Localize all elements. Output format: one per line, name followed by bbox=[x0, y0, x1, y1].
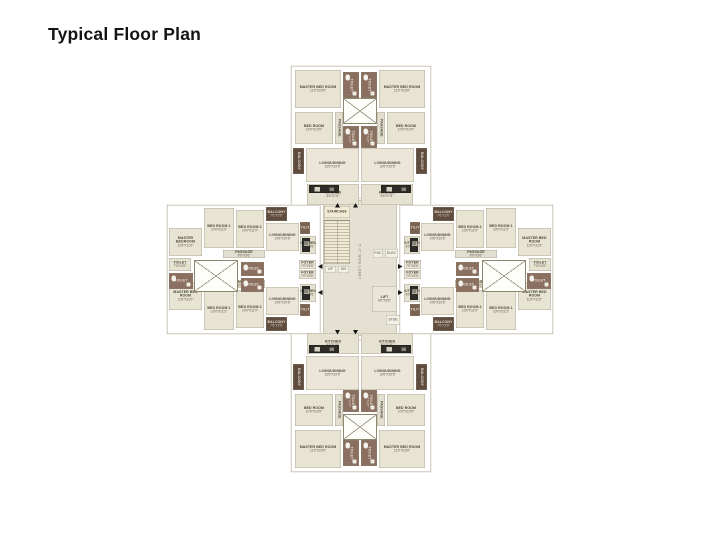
entry-arrow-up-0 bbox=[335, 203, 340, 208]
room-l2-utility: UTILITY bbox=[300, 304, 310, 316]
room-b1-master: MASTER BED ROOM11'0"X10'6" bbox=[295, 430, 341, 468]
room-l2-bed2: BED ROOM 210'0"X11'0" bbox=[236, 290, 264, 328]
page: { "title": "Typical Floor Plan", "palett… bbox=[0, 0, 720, 540]
entry-arrow-left-4 bbox=[318, 264, 323, 269]
room-r1-living: LIVING/DINING14'6"X10'6" bbox=[421, 223, 454, 251]
entry-arrow-down-3 bbox=[353, 330, 358, 335]
room-l1-bed2: BED ROOM 210'0"X11'0" bbox=[236, 210, 264, 248]
room-r1-toilet-b: TOILET bbox=[456, 262, 479, 276]
room-l1-foyer: FOYER7'0"X5'6" bbox=[299, 260, 316, 269]
shaft-duct-2 bbox=[194, 260, 238, 292]
room-t1-passage: PASSAGE bbox=[335, 112, 343, 144]
room-t1-master: MASTER BED ROOM11'0"X10'6" bbox=[295, 70, 341, 108]
room-r1-master: MASTER BED ROOM11'6"X11'0" bbox=[518, 228, 551, 256]
room-b2-living: LIVING/DINING13'6"X10'6" bbox=[361, 356, 414, 390]
room-l2-toilet-a: TOILET bbox=[169, 273, 193, 289]
room-dn: DN bbox=[338, 266, 349, 273]
room-l2-bed1: BED ROOM 110'0"X11'3" bbox=[204, 290, 234, 330]
floor-plan: MASTER BED ROOM11'0"X10'6"TOILETBED ROOM… bbox=[167, 66, 553, 472]
room-l1-balcony: BALCONY7'6"X3'6" bbox=[266, 207, 287, 221]
room-l1-utility: UTILITY bbox=[300, 222, 310, 234]
shaft-duct-0 bbox=[343, 98, 377, 124]
room-r1-bed2: BED ROOM 210'0"X11'0" bbox=[456, 210, 484, 248]
room-r2-toilet-a: TOILET bbox=[527, 273, 551, 289]
room-t2-toilet: TOILET7'0"X4'0" bbox=[361, 126, 377, 148]
room-l2-toilet-b: TOILET bbox=[241, 278, 264, 292]
room-t1-balcony: BALCONY bbox=[293, 148, 304, 174]
room-t2-living: LIVING/DINING13'6"X10'6" bbox=[361, 148, 414, 182]
room-t2-master: MASTER BED ROOM11'0"X10'6" bbox=[379, 70, 425, 108]
entry-arrow-left-5 bbox=[318, 290, 323, 295]
room-b1-counter bbox=[309, 345, 339, 353]
room-b1-balcony: BALCONY bbox=[293, 364, 304, 390]
room-b2-passage: PASSAGE bbox=[377, 394, 385, 426]
room-r2-bed2: BED ROOM 210'0"X11'0" bbox=[456, 290, 484, 328]
room-l1-bed1: BED ROOM 110'0"X11'3" bbox=[204, 208, 234, 248]
room-b2-counter bbox=[381, 345, 411, 353]
room-b1-passage: PASSAGE bbox=[335, 394, 343, 426]
room-l1-counter bbox=[302, 238, 310, 252]
room-r2-balcony: BALCONY7'6"X3'6" bbox=[433, 317, 454, 331]
room-b2-toilet: TOILET7'0"X4'0" bbox=[361, 390, 377, 412]
room-b1-bed: BED ROOM10'0"X10'0" bbox=[295, 394, 333, 426]
room-b2-toilet-btm: TOILET bbox=[361, 440, 377, 466]
room-r2-utility: UTILITY bbox=[410, 304, 420, 316]
room-b2-balcony: BALCONY bbox=[416, 364, 427, 390]
room-t2-counter bbox=[381, 185, 411, 193]
room-stair-label: STAIRCASE bbox=[324, 206, 350, 218]
room-l1-master: MASTER BEDROOM11'6"X11'0" bbox=[169, 228, 202, 256]
room-l2-counter bbox=[302, 286, 310, 300]
entry-arrow-right-7 bbox=[398, 290, 403, 295]
room-t2-bed: BED ROOM10'0"X10'0" bbox=[387, 112, 425, 144]
room-t1-toilet: TOILET7'0"X4'0" bbox=[343, 126, 359, 148]
room-b2-bed: BED ROOM10'0"X10'0" bbox=[387, 394, 425, 426]
entry-arrow-up-1 bbox=[353, 203, 358, 208]
room-up: UP bbox=[325, 266, 336, 273]
staircase-steps bbox=[324, 220, 350, 264]
room-r1-foyer: FOYER7'0"X5'6" bbox=[404, 260, 421, 269]
room-r2-living: LIVING/DINING14'6"X10'6" bbox=[421, 287, 454, 315]
room-fhc: FHC bbox=[373, 249, 383, 258]
room-l1-toilet-a: TOILET7'0"X4'0" bbox=[169, 258, 191, 271]
shaft-duct-1 bbox=[343, 414, 377, 440]
room-r1-toilet-a: TOILET7'0"X4'0" bbox=[529, 258, 551, 271]
room-t2-toilet-top: TOILET bbox=[361, 72, 377, 98]
room-l1-toilet-b: TOILET bbox=[241, 262, 264, 276]
room-b2-master: MASTER BED ROOM11'0"X10'6" bbox=[379, 430, 425, 468]
room-r1-balcony: BALCONY7'6"X3'6" bbox=[433, 207, 454, 221]
room-lobby: 5'-0" WIDE LOBBY bbox=[353, 212, 365, 312]
room-b1-toilet-btm: TOILET bbox=[343, 440, 359, 466]
room-r2-counter bbox=[410, 286, 418, 300]
room-r2-bed1: BED ROOM 110'0"X11'3" bbox=[486, 290, 516, 330]
room-l2-foyer: FOYER7'0"X5'6" bbox=[299, 270, 316, 279]
room-l2-balcony: BALCONY7'6"X3'6" bbox=[266, 317, 287, 331]
room-stge: STGE bbox=[386, 315, 400, 325]
entry-arrow-down-2 bbox=[335, 330, 340, 335]
room-r1-bed1: BED ROOM 110'0"X11'3" bbox=[486, 208, 516, 248]
shaft-duct-3 bbox=[482, 260, 526, 292]
page-title: Typical Floor Plan bbox=[48, 24, 201, 45]
room-r2-toilet-b: TOILET bbox=[456, 278, 479, 292]
room-lift: LIFT6'6"X5'6" bbox=[372, 286, 397, 312]
room-l2-living: LIVING/DINING14'6"X10'6" bbox=[266, 287, 299, 315]
room-t1-toilet-top: TOILET bbox=[343, 72, 359, 98]
room-t1-counter bbox=[309, 185, 339, 193]
room-t2-balcony: BALCONY bbox=[416, 148, 427, 174]
room-r1-passage: PASSAGE9'0"X3'6" bbox=[455, 250, 497, 258]
room-b1-living: LIVING/DINING13'6"X10'6" bbox=[306, 356, 359, 390]
room-t1-living: LIVING/DINING13'6"X10'6" bbox=[306, 148, 359, 182]
room-r1-utility: UTILITY bbox=[410, 222, 420, 234]
room-l1-living: LIVING/DINING14'6"X10'6" bbox=[266, 223, 299, 251]
room-l1-passage: PASSAGE9'0"X3'6" bbox=[223, 250, 265, 258]
entry-arrow-right-6 bbox=[398, 264, 403, 269]
room-b1-toilet: TOILET7'0"X4'0" bbox=[343, 390, 359, 412]
room-elec: ELEC bbox=[385, 249, 398, 258]
room-t2-passage: PASSAGE bbox=[377, 112, 385, 144]
room-t1-bed: BED ROOM10'0"X10'0" bbox=[295, 112, 333, 144]
room-r2-foyer: FOYER7'0"X5'6" bbox=[404, 270, 421, 279]
room-r1-counter bbox=[410, 238, 418, 252]
